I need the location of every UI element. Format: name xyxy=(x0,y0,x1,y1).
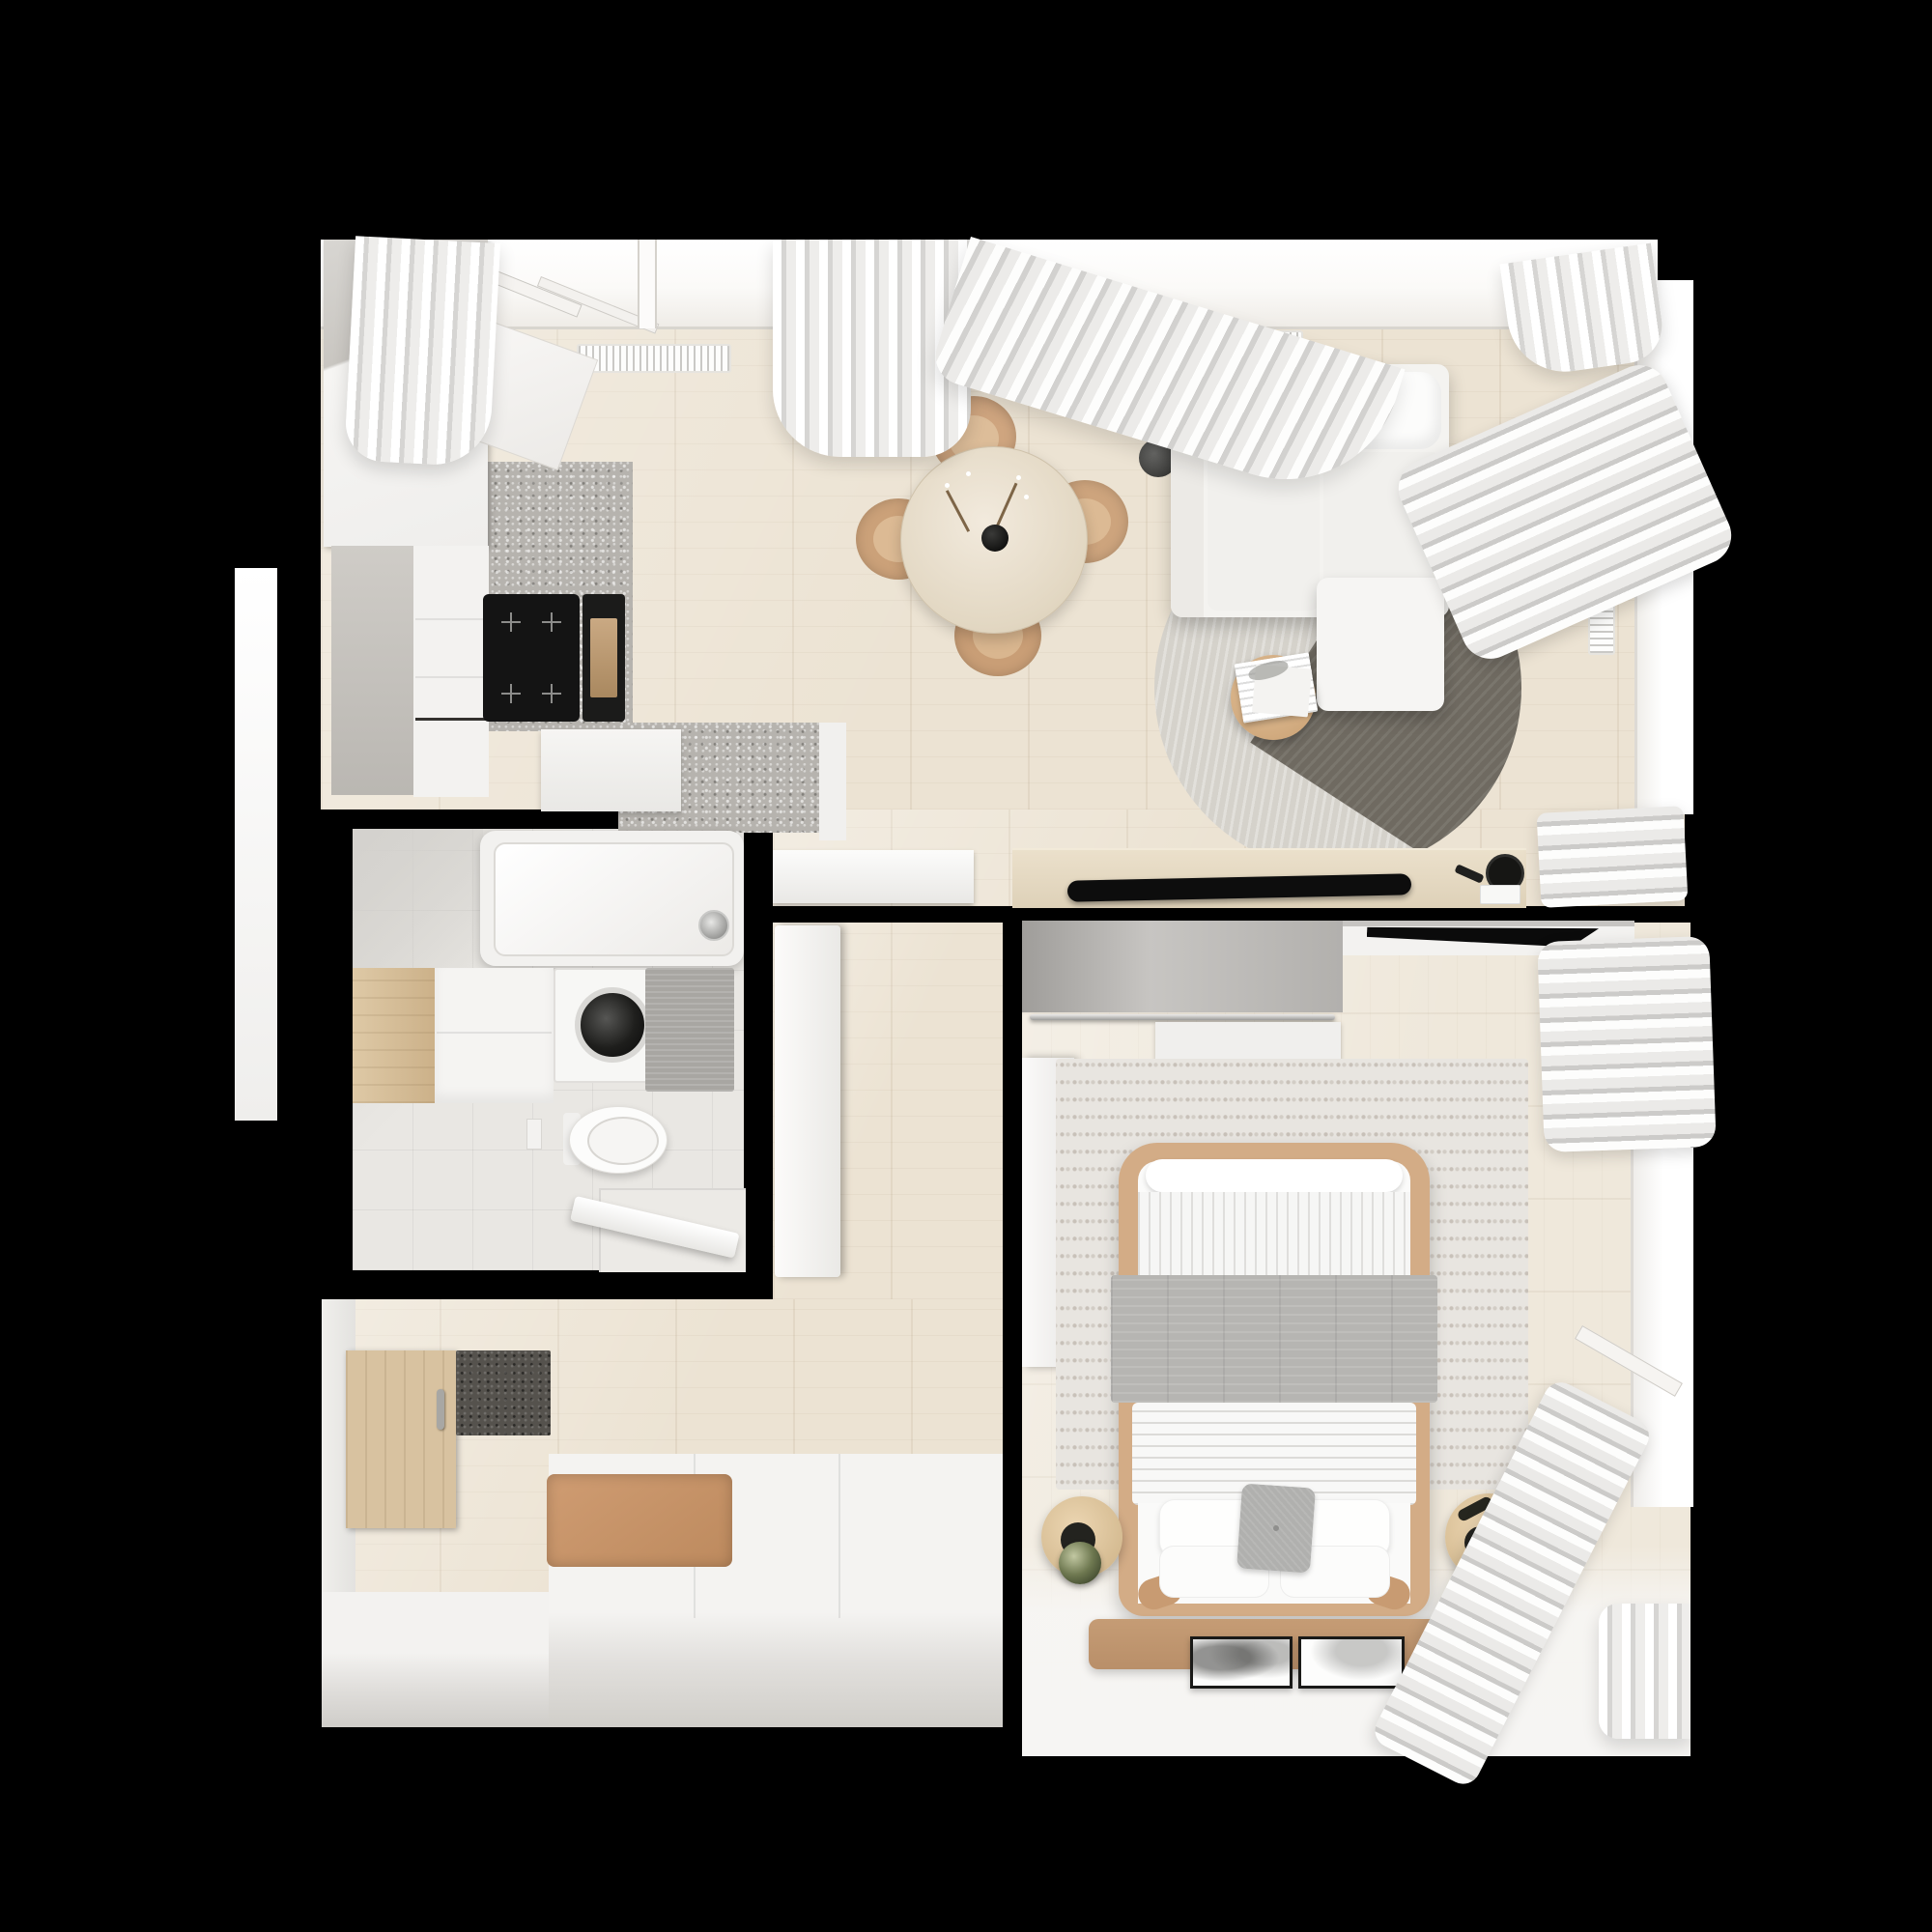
cushion-button xyxy=(1273,1525,1279,1531)
bathtub xyxy=(480,831,744,966)
wall-notch xyxy=(1658,236,1716,280)
drawer-seam xyxy=(415,618,489,620)
kitchen-counter-white xyxy=(413,546,489,797)
bench-seam xyxy=(838,1454,840,1618)
bench-cushion xyxy=(547,1474,732,1567)
coat-panel-wood xyxy=(346,1350,456,1528)
mattress-top-roll xyxy=(1146,1159,1403,1192)
coat-hook-handle xyxy=(437,1389,444,1430)
radiator xyxy=(577,344,731,373)
bathtub-basin xyxy=(494,842,734,956)
exterior-curtain-strip xyxy=(235,568,277,1121)
burner-mark xyxy=(498,681,524,706)
storage-bench-left xyxy=(322,1592,549,1727)
kitchen-island-front xyxy=(541,729,681,811)
island-white-edge xyxy=(819,723,846,840)
bathroom-wall-shade xyxy=(353,829,483,969)
floor-plan-render xyxy=(0,0,1932,1932)
curtain-bunch xyxy=(1599,1604,1690,1739)
sofa-chaise xyxy=(1317,578,1444,711)
blossom xyxy=(966,471,971,476)
white-sideboard xyxy=(773,850,974,903)
roman-curtain-folds xyxy=(1537,806,1689,908)
drawer-seam xyxy=(415,676,489,678)
flush-plate xyxy=(526,1119,542,1150)
wardrobe-shelf xyxy=(1155,1022,1341,1061)
kitchen-lower-cabinet-gray xyxy=(331,546,415,795)
tub-faucet xyxy=(698,910,729,941)
counter-edge-line xyxy=(415,718,489,721)
small-white-box xyxy=(1480,885,1520,904)
wardrobe-top xyxy=(1022,921,1343,1012)
toilet xyxy=(569,1106,668,1174)
vanity-wood-unit xyxy=(353,968,435,1103)
oven-door-glass xyxy=(590,618,617,697)
vanity-white-cabinet xyxy=(435,968,554,1103)
green-glass-lamp xyxy=(1059,1542,1101,1584)
induction-cooktop xyxy=(483,594,580,722)
open-door-panel xyxy=(775,925,840,1277)
bath-mat xyxy=(645,968,734,1092)
blossom xyxy=(1024,495,1029,499)
blossom xyxy=(1016,475,1021,480)
built-in-oven xyxy=(582,594,625,722)
stacked-curtain-folds xyxy=(1537,936,1716,1152)
toilet-seat xyxy=(587,1117,659,1165)
vanity-seam xyxy=(437,1032,552,1034)
gray-cushion xyxy=(1236,1483,1316,1573)
wardrobe-rail xyxy=(1030,1014,1335,1020)
window-mullion xyxy=(638,240,657,328)
vase xyxy=(981,525,1009,552)
washer-door xyxy=(575,987,650,1063)
gray-blanket xyxy=(1111,1275,1437,1403)
blossom xyxy=(945,483,950,488)
framed-print xyxy=(1190,1636,1293,1689)
burner-mark xyxy=(539,610,564,635)
quilted-band xyxy=(1138,1192,1410,1275)
curtain xyxy=(344,236,500,468)
burner-mark xyxy=(539,681,564,706)
doormat xyxy=(456,1350,551,1435)
burner-mark xyxy=(498,610,524,635)
framed-print xyxy=(1298,1636,1405,1689)
